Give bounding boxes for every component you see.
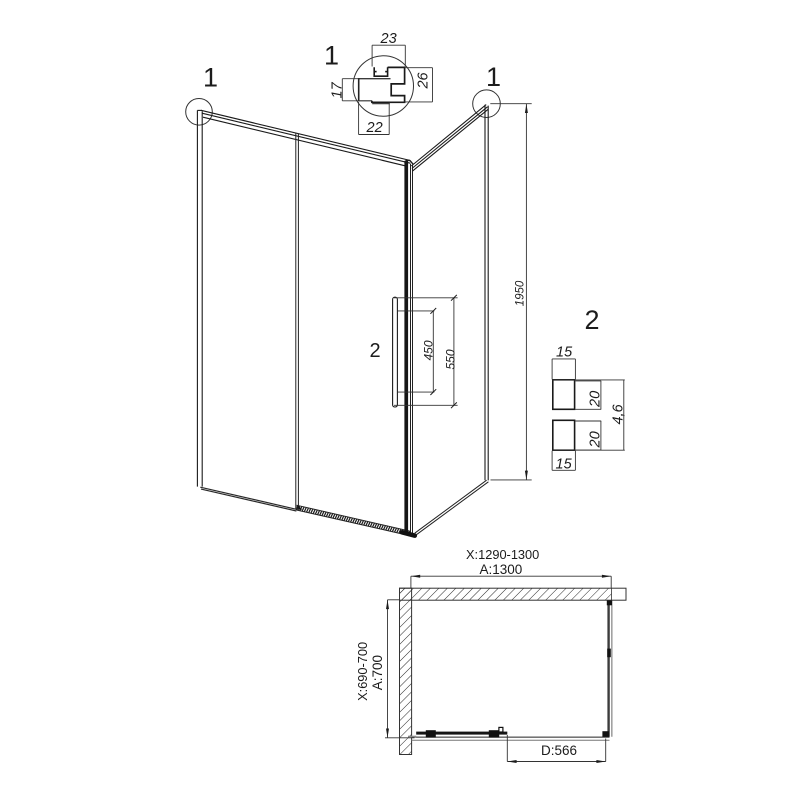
svg-text:1950: 1950	[515, 280, 527, 306]
svg-text:22: 22	[366, 120, 383, 136]
svg-text:550: 550	[444, 349, 458, 369]
svg-text:1: 1	[324, 41, 339, 71]
svg-text:15: 15	[556, 344, 573, 360]
svg-text:A:700: A:700	[370, 655, 385, 690]
svg-text:20: 20	[588, 391, 604, 408]
svg-text:15: 15	[556, 457, 573, 473]
svg-text:1: 1	[203, 63, 218, 93]
svg-text:26: 26	[415, 71, 431, 89]
svg-text:20: 20	[588, 431, 604, 448]
svg-text:450: 450	[422, 340, 436, 360]
svg-text:1: 1	[486, 62, 501, 92]
svg-text:D:566: D:566	[541, 743, 577, 758]
svg-text:23: 23	[380, 31, 397, 47]
svg-text:2: 2	[370, 340, 381, 362]
svg-text:X:1290-1300: X:1290-1300	[466, 547, 539, 562]
svg-text:X:690-700: X:690-700	[355, 642, 370, 701]
svg-text:17: 17	[330, 81, 346, 98]
svg-text:2: 2	[585, 305, 600, 335]
svg-text:4,6: 4,6	[611, 403, 627, 424]
svg-text:A:1300: A:1300	[480, 562, 523, 577]
